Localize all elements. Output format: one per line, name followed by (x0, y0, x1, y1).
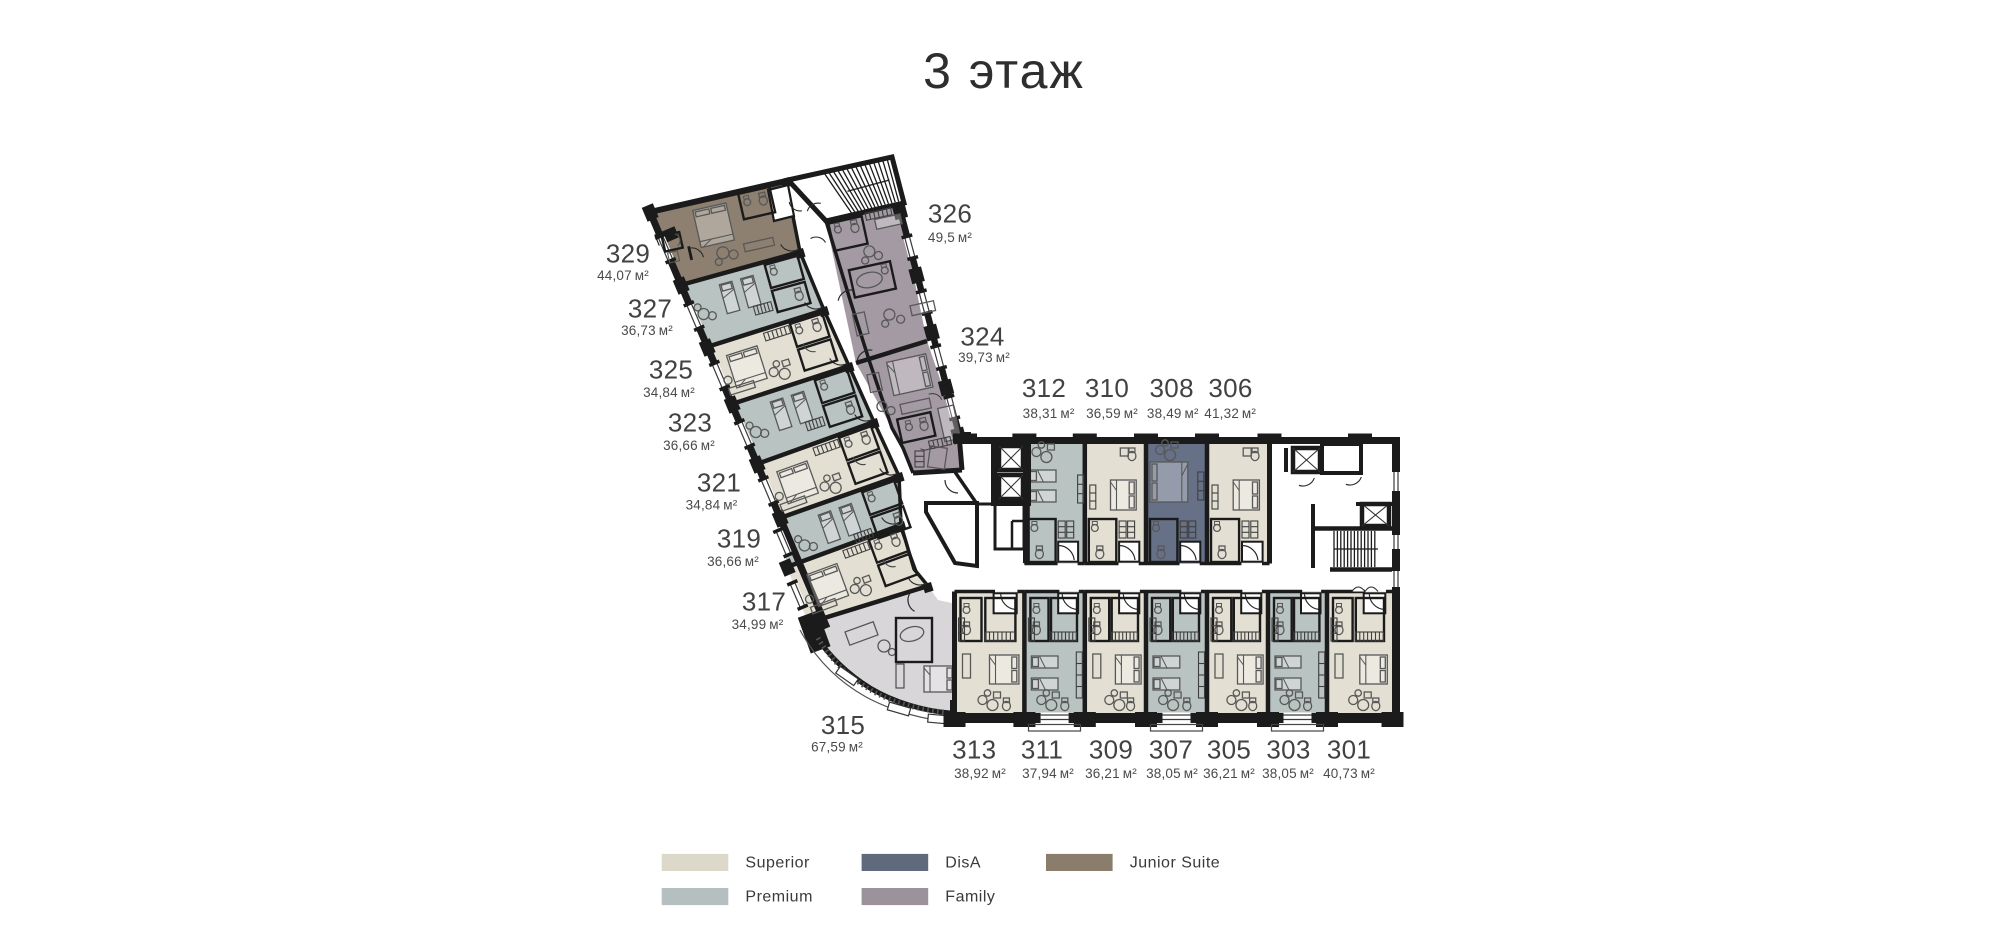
svg-text:38,49 м²: 38,49 м² (1147, 406, 1199, 421)
svg-text:36,73 м²: 36,73 м² (621, 323, 673, 338)
svg-text:305: 305 (1207, 735, 1251, 765)
svg-text:37,94 м²: 37,94 м² (1022, 766, 1074, 781)
svg-text:Family: Family (945, 889, 995, 906)
svg-text:36,21 м²: 36,21 м² (1203, 766, 1255, 781)
svg-text:3 этаж: 3 этаж (923, 43, 1085, 99)
svg-text:Junior Suite: Junior Suite (1130, 854, 1221, 871)
svg-text:38,05 м²: 38,05 м² (1262, 766, 1314, 781)
svg-text:DisA: DisA (945, 854, 981, 871)
svg-text:321: 321 (697, 468, 741, 498)
svg-text:307: 307 (1149, 735, 1193, 765)
svg-text:306: 306 (1208, 373, 1252, 403)
svg-text:34,84 м²: 34,84 м² (643, 385, 695, 400)
svg-text:49,5 м²: 49,5 м² (928, 230, 972, 245)
svg-text:36,59 м²: 36,59 м² (1086, 406, 1138, 421)
svg-text:39,73 м²: 39,73 м² (958, 350, 1010, 365)
svg-text:325: 325 (649, 355, 693, 385)
svg-text:327: 327 (628, 294, 672, 324)
svg-text:301: 301 (1327, 735, 1371, 765)
svg-text:40,73 м²: 40,73 м² (1323, 766, 1375, 781)
svg-text:329: 329 (606, 239, 650, 269)
svg-text:41,32 м²: 41,32 м² (1204, 406, 1256, 421)
svg-text:38,31 м²: 38,31 м² (1023, 406, 1075, 421)
svg-text:38,05 м²: 38,05 м² (1146, 766, 1198, 781)
svg-text:36,21 м²: 36,21 м² (1085, 766, 1137, 781)
svg-text:303: 303 (1266, 735, 1310, 765)
svg-text:36,66 м²: 36,66 м² (663, 438, 715, 453)
svg-text:34,84 м²: 34,84 м² (686, 498, 738, 513)
svg-text:310: 310 (1085, 373, 1129, 403)
svg-text:326: 326 (928, 199, 972, 229)
svg-text:Premium: Premium (745, 889, 813, 906)
svg-text:312: 312 (1022, 373, 1066, 403)
svg-text:324: 324 (960, 322, 1004, 352)
svg-text:34,99 м²: 34,99 м² (732, 617, 784, 632)
svg-text:311: 311 (1021, 735, 1063, 765)
svg-text:317: 317 (742, 587, 786, 617)
svg-text:Superior: Superior (745, 854, 810, 871)
svg-text:38,92 м²: 38,92 м² (954, 766, 1006, 781)
svg-text:319: 319 (717, 524, 761, 554)
svg-text:309: 309 (1089, 735, 1133, 765)
svg-text:36,66 м²: 36,66 м² (707, 554, 759, 569)
svg-text:308: 308 (1150, 373, 1194, 403)
svg-text:315: 315 (821, 710, 865, 740)
svg-text:323: 323 (668, 408, 712, 438)
svg-text:44,07 м²: 44,07 м² (597, 268, 649, 283)
svg-text:67,59 м²: 67,59 м² (811, 740, 863, 755)
svg-text:313: 313 (952, 735, 996, 765)
